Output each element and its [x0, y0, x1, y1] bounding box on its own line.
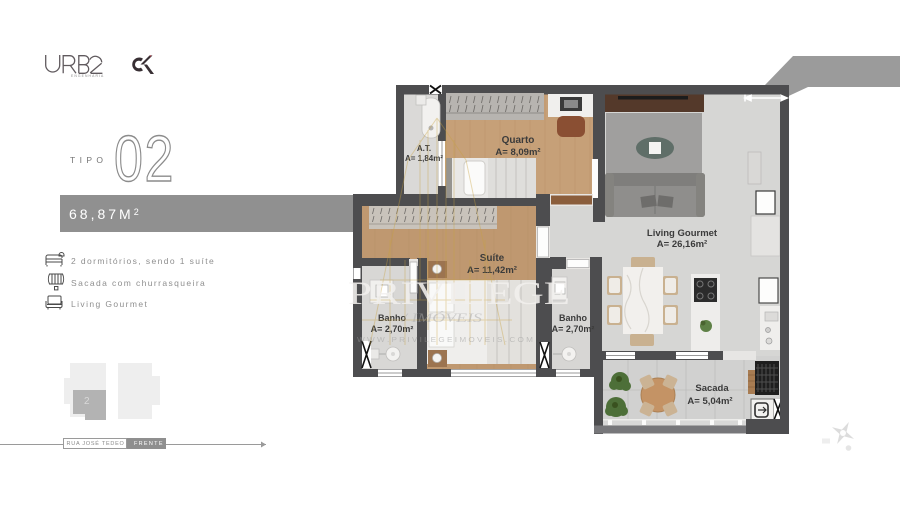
svg-text:A= 2,70m²: A= 2,70m² — [371, 324, 414, 334]
svg-text:A= 11,42m²: A= 11,42m² — [467, 265, 517, 276]
svg-text:PRIVILEGE: PRIVILEGE — [348, 276, 570, 312]
svg-text:A= 2,70m²: A= 2,70m² — [552, 324, 595, 334]
svg-text:/ IMÓVEIS: / IMÓVEIS — [401, 310, 483, 325]
svg-text:A= 5,04m²: A= 5,04m² — [687, 396, 732, 407]
svg-text:Suíte: Suíte — [480, 253, 505, 264]
svg-text:A= 8,09m²: A= 8,09m² — [495, 147, 540, 158]
svg-text:Banho: Banho — [559, 313, 588, 323]
svg-text:Living Gourmet: Living Gourmet — [647, 228, 718, 239]
svg-text:Quarto: Quarto — [502, 135, 535, 146]
svg-text:W W W . P R I V I L E G E I M: W W W . P R I V I L E G E I M O V E I S … — [357, 337, 533, 344]
svg-text:A= 26,16m²: A= 26,16m² — [657, 239, 707, 250]
svg-text:A.T.: A.T. — [417, 144, 431, 153]
svg-text:Sacada: Sacada — [695, 383, 729, 394]
